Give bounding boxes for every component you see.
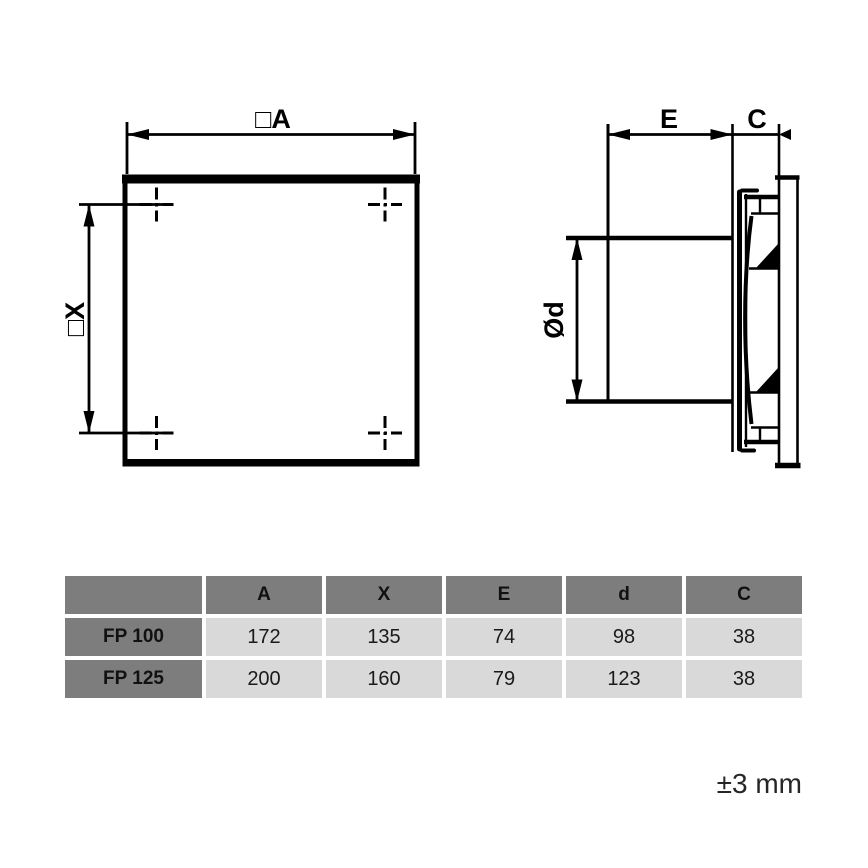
louver-blade-bottom	[756, 368, 778, 392]
arrowhead-right-icon	[393, 129, 415, 140]
table-header-e: E	[446, 576, 562, 614]
dim-label-e: E	[660, 104, 678, 134]
table-cell: 123	[566, 660, 682, 698]
dim-label-diameter: Ød	[539, 301, 569, 339]
front-view: □A □X	[60, 104, 420, 464]
mounting-hole-cross	[140, 188, 174, 222]
dim-label-square-a: □A	[255, 104, 291, 134]
mounting-hole-cross	[368, 188, 402, 222]
dim-width-a: □A	[127, 104, 415, 174]
fan-body-section	[740, 191, 779, 451]
arrowhead-outside-icon	[779, 129, 791, 140]
table-cell: 172	[206, 618, 322, 656]
arrowhead-up-icon	[572, 238, 583, 260]
dim-e-and-c: E C	[608, 104, 791, 466]
technical-drawing-page: □A □X	[0, 0, 868, 868]
front-panel-outline	[125, 178, 417, 464]
louver-blade-top	[756, 244, 778, 268]
table-cell: 135	[326, 618, 442, 656]
table-cell: 160	[326, 660, 442, 698]
mounting-hole-cross	[368, 416, 402, 450]
table-cell: 98	[566, 618, 682, 656]
tolerance-note: ±3 mm	[717, 768, 802, 800]
dimensions-table: A X E d C FP 100 172 135 74 98 38 FP 125…	[65, 576, 802, 698]
dim-diameter-d: Ød	[539, 238, 583, 402]
table-cell: 38	[686, 660, 802, 698]
dim-label-c: C	[747, 104, 767, 134]
arrowhead-left-icon	[127, 129, 149, 140]
mounting-hole-marks	[140, 188, 403, 451]
table-cell: 79	[446, 660, 562, 698]
table-header-x: X	[326, 576, 442, 614]
arrowhead-down-icon	[572, 380, 583, 402]
dim-height-x: □X	[60, 205, 165, 434]
mounting-hole-cross	[140, 416, 174, 450]
table-row-label: FP 125	[65, 660, 202, 698]
dimension-drawing: □A □X	[0, 0, 868, 868]
table-header-a: A	[206, 576, 322, 614]
arrowhead-up-icon	[84, 205, 95, 227]
arrowhead-left-icon	[608, 129, 630, 140]
table-header-model	[65, 576, 202, 614]
arrowhead-right-icon	[711, 129, 733, 140]
table-header-c: C	[686, 576, 802, 614]
arrowhead-down-icon	[84, 411, 95, 433]
table-cell: 200	[206, 660, 322, 698]
table-row-label: FP 100	[65, 618, 202, 656]
duct-spigot	[566, 238, 732, 402]
table-cell: 38	[686, 618, 802, 656]
table-cell: 74	[446, 618, 562, 656]
side-view: E C Ød	[539, 104, 801, 466]
dim-label-square-x: □X	[60, 302, 90, 336]
table-header-d: d	[566, 576, 682, 614]
